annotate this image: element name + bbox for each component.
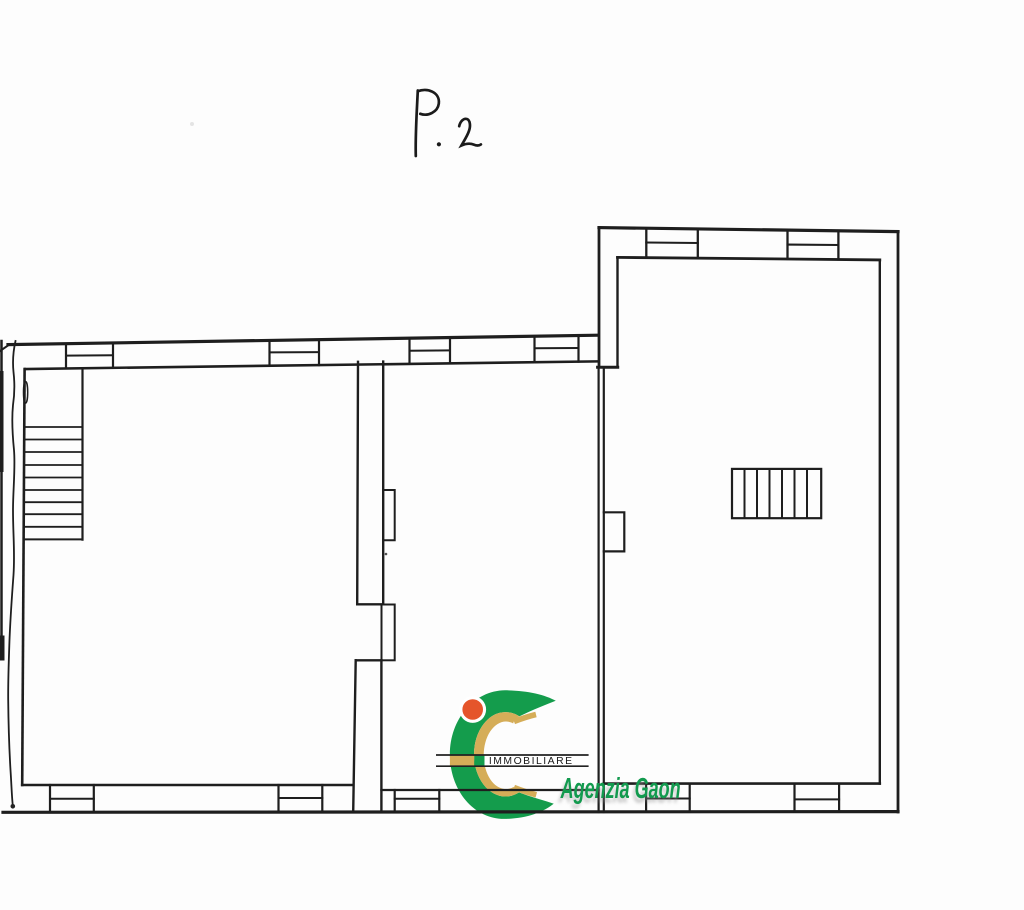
svg-text:Agenzia Gaon: Agenzia Gaon — [560, 773, 681, 805]
svg-text:IMMOBILIARE: IMMOBILIARE — [489, 756, 574, 767]
